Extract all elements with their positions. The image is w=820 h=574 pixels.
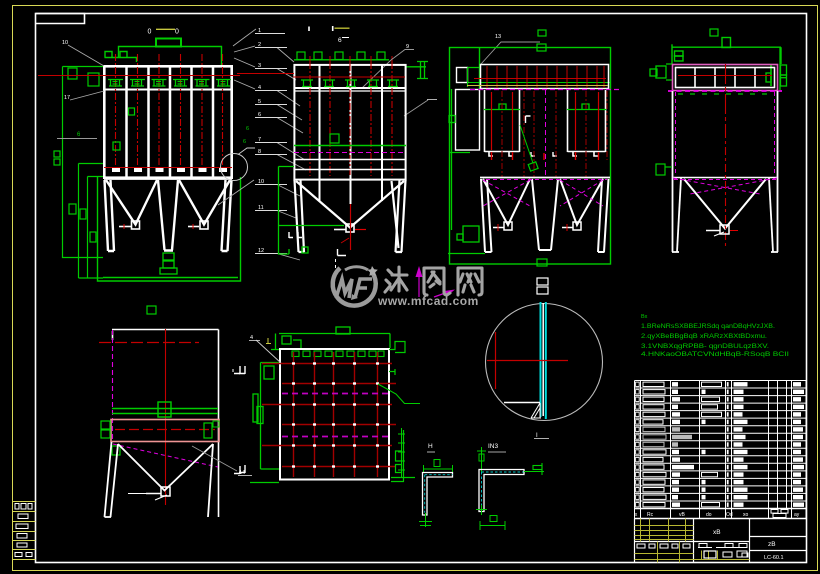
svg-text:10: 10	[62, 40, 68, 46]
svg-text:17: 17	[64, 95, 70, 101]
svg-text:2.qyXBeBBgBqB xRARzXBXtBDxmu.: 2.qyXBeBBgBqB xRARzXBXtBDxmu.	[641, 333, 767, 340]
svg-text:www.mfcad.com: www.mfcad.com	[377, 294, 479, 308]
svg-text:LC-60.1: LC-60.1	[764, 555, 784, 561]
svg-text:Bx: Bx	[641, 314, 648, 320]
svg-text:6: 6	[243, 139, 246, 145]
svg-text:Od: Od	[726, 512, 733, 518]
svg-text:vB: vB	[679, 512, 686, 518]
svg-text:4.HNKaoOBATCVNdHBqB-RSoqB BCI: 4.HNKaoOBATCVNdHBqB-RSoqB BCII	[641, 351, 789, 358]
svg-text:do: do	[706, 512, 712, 518]
svg-text:13: 13	[495, 34, 501, 40]
svg-text:3.1VNBXqgRPBB- qgnDBULqzBXV.: 3.1VNBXqgRPBB- qgnDBULqzBXV.	[641, 343, 769, 350]
svg-text:0: 0	[175, 29, 179, 36]
svg-text:zB: zB	[768, 541, 776, 548]
svg-text:IN3: IN3	[488, 443, 499, 450]
svg-text:6: 6	[338, 37, 342, 44]
svg-text:Rc: Rc	[647, 512, 654, 518]
svg-text:9: 9	[406, 44, 409, 50]
svg-text:6: 6	[246, 126, 249, 132]
svg-text:xo: xo	[743, 512, 749, 518]
svg-text:1.BReNRsSXBBEJRSdq qanDBqHVzJ: 1.BReNRsSXBBEJRSdq qanDBqHVzJXB.	[641, 323, 775, 330]
svg-text:ay: ay	[794, 512, 800, 518]
svg-text:xB: xB	[713, 529, 721, 536]
svg-text:0: 0	[148, 29, 152, 36]
svg-text:H: H	[428, 443, 433, 450]
